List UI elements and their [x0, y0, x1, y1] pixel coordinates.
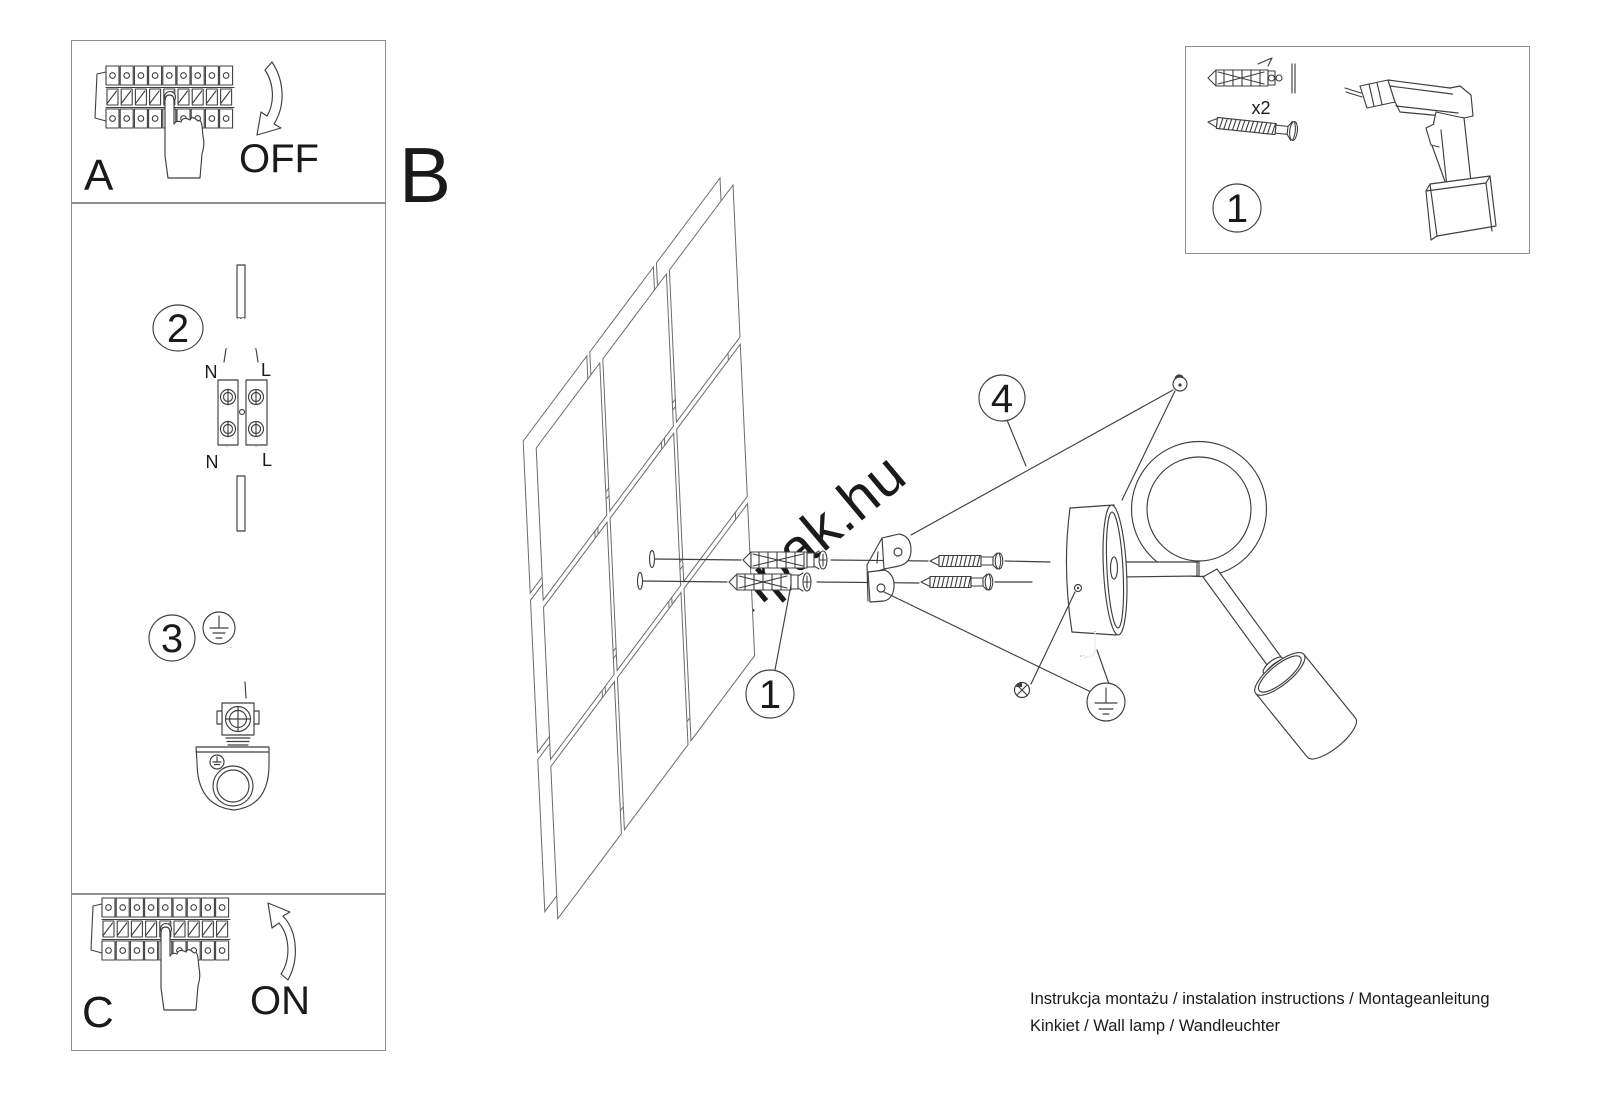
label-c: C — [82, 988, 114, 1037]
loop-arm — [1116, 442, 1284, 670]
step-number: 1 — [1226, 187, 1248, 231]
label-a: A — [84, 151, 114, 200]
mounting-bracket — [867, 534, 911, 602]
drill-icon — [1345, 80, 1496, 240]
cable-top — [237, 265, 245, 318]
wire-label-n: N — [206, 452, 219, 472]
drill-hole-mark — [650, 551, 655, 568]
breaker-panel-on: C ON — [82, 898, 310, 1037]
step-number: 1 — [759, 673, 781, 717]
step-number: 4 — [991, 377, 1013, 421]
mounting-ring — [196, 747, 269, 810]
ground-symbol-icon — [203, 612, 235, 644]
wire-label-l: L — [262, 450, 272, 470]
step-number: 3 — [161, 617, 183, 661]
ground-symbol-icon — [1087, 683, 1125, 721]
tools-box: x2 1 — [1207, 58, 1496, 240]
step-number: 2 — [167, 307, 189, 351]
cable-bottom — [237, 476, 245, 531]
canopy — [1066, 504, 1129, 657]
arrow-up-icon — [268, 903, 295, 980]
step3-ground: 3 — [149, 612, 269, 810]
step2-wiring: 2 N L N L — [153, 265, 272, 531]
ground-wire — [1081, 632, 1095, 657]
wire-label-l: L — [261, 360, 271, 380]
wall-plug-icon — [1208, 70, 1282, 86]
step1-wall-marker: 1 — [746, 670, 794, 718]
mounting-screw — [930, 553, 1003, 569]
canopy-rod — [1116, 562, 1199, 577]
footer-line1: Instrukcja montażu / instalation instruc… — [1030, 990, 1490, 1008]
wire-label-n: N — [205, 362, 218, 382]
diagram-canvas: lampak.hu A OFF C ON B 2 — [0, 0, 1600, 1098]
wall-plug — [743, 551, 827, 569]
label-b: B — [399, 131, 451, 219]
canopy-screw-top — [1173, 374, 1187, 391]
step4-marker: 4 — [979, 375, 1026, 466]
lamp-arm-rod — [1203, 569, 1284, 669]
canopy-screw-bottom — [1015, 683, 1030, 698]
instruction-sheet: lampak.hu A OFF C ON B 2 — [0, 0, 1600, 1098]
footer-line2: Kinkiet / Wall lamp / Wandleuchter — [1030, 1017, 1281, 1035]
ground-terminal — [217, 703, 259, 745]
arrow-down-icon — [257, 62, 282, 135]
mounting-screw — [921, 574, 993, 590]
drill-hole-mark — [638, 573, 643, 590]
quantity-label: x2 — [1251, 98, 1270, 118]
label-off: OFF — [239, 137, 319, 181]
terminal-block — [218, 380, 267, 445]
label-on: ON — [250, 979, 310, 1023]
breaker-panel-off: A OFF — [84, 62, 319, 200]
